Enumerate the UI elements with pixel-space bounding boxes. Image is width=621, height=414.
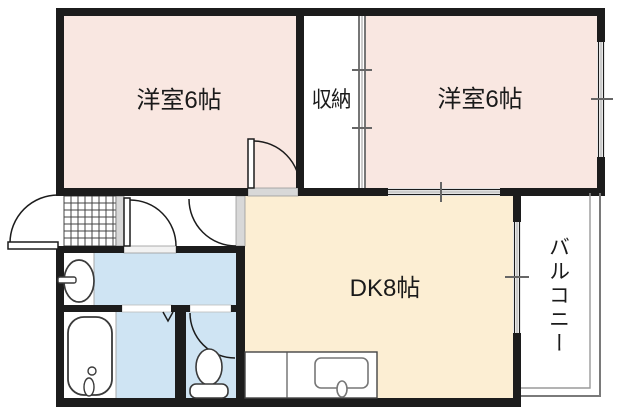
wall-dk-right-lower xyxy=(513,333,521,407)
genkan-tiles xyxy=(64,196,116,246)
bathroom-doorway-gap xyxy=(122,305,172,312)
floor-plan-drawing xyxy=(0,0,621,414)
room-label-dining-kitchen: DK8帖 xyxy=(350,277,421,301)
room-label-balcony: バルコニー xyxy=(548,236,569,356)
wall-bedrooms-bottom-mid xyxy=(298,188,388,196)
floor-plan: 洋室6帖 収納 洋室6帖 DK8帖 バルコニー xyxy=(0,0,621,414)
wall-bedrooms-bottom-right xyxy=(500,188,521,196)
wall-bath-toilet xyxy=(175,312,186,398)
wall-washroom-top-right xyxy=(176,246,245,253)
entrance-door xyxy=(8,195,58,249)
wall-bottom xyxy=(56,398,521,407)
wall-top xyxy=(56,8,605,16)
wall-dk-right-upper xyxy=(513,196,521,222)
wall-bedroom-storage xyxy=(296,16,304,188)
wall-left-upper xyxy=(56,8,64,196)
washroom-doorway-threshold xyxy=(124,246,176,253)
wall-bedrooms-bottom-left xyxy=(56,188,248,196)
wall-right-above-window xyxy=(597,8,605,42)
bathtub xyxy=(68,317,112,396)
wall-washroom-bottom-mid xyxy=(171,305,190,312)
genkan-step-threshold xyxy=(116,196,124,246)
bedroom-left-doorway-threshold xyxy=(248,188,298,196)
room-label-storage: 収納 xyxy=(311,89,350,111)
wall-washroom-top-left xyxy=(64,246,124,253)
toilet-doorway-gap xyxy=(190,305,231,312)
wall-left-lower xyxy=(56,246,64,407)
wall-wetrooms-dk xyxy=(236,253,245,398)
room-label-bedroom-left: 洋室6帖 xyxy=(136,89,221,113)
kitchen-counter xyxy=(245,352,377,398)
wall-washroom-bottom-left xyxy=(64,305,122,312)
room-label-bedroom-right: 洋室6帖 xyxy=(437,88,522,112)
wall-washroom-bottom-right xyxy=(231,305,245,312)
hallway-floor xyxy=(124,196,236,246)
hall-dk-doorway-threshold xyxy=(236,196,245,246)
